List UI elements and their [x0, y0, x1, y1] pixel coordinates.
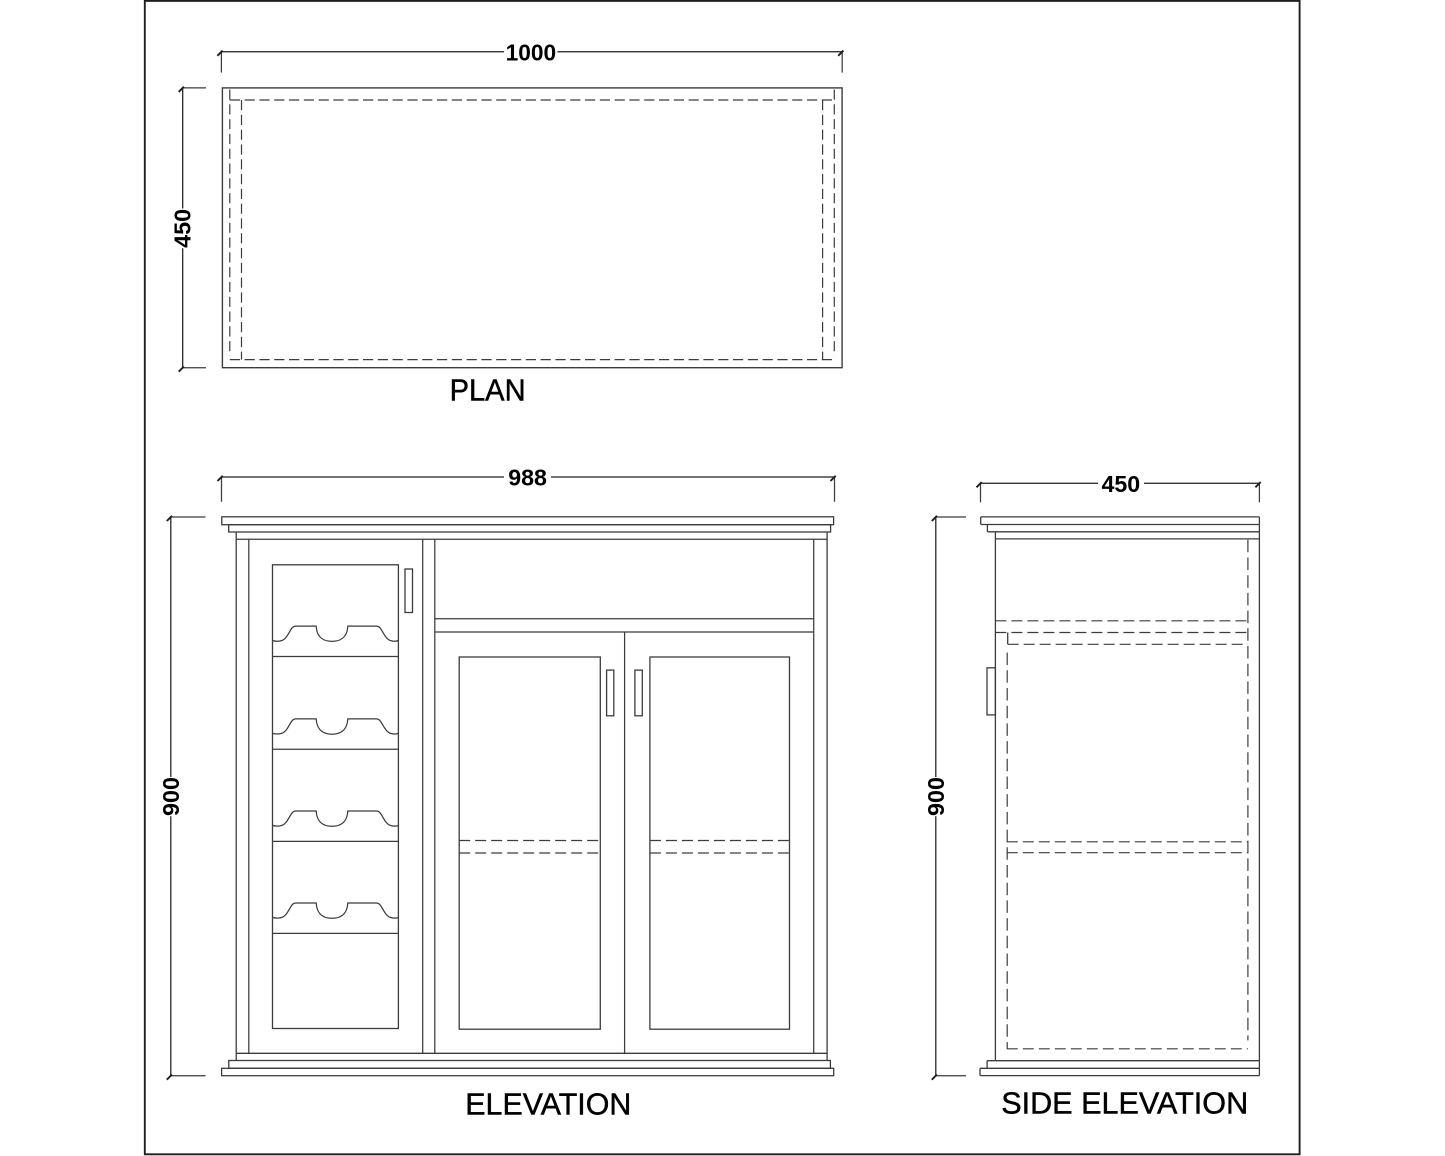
svg-text:PLAN: PLAN — [450, 373, 526, 408]
svg-text:ELEVATION: ELEVATION — [465, 1086, 631, 1121]
svg-text:450: 450 — [1101, 471, 1140, 497]
svg-text:988: 988 — [508, 465, 547, 491]
svg-text:1000: 1000 — [506, 39, 557, 65]
svg-text:SIDE ELEVATION: SIDE ELEVATION — [1001, 1085, 1248, 1120]
svg-text:450: 450 — [170, 209, 196, 248]
svg-text:900: 900 — [923, 777, 949, 816]
svg-text:900: 900 — [158, 777, 184, 816]
